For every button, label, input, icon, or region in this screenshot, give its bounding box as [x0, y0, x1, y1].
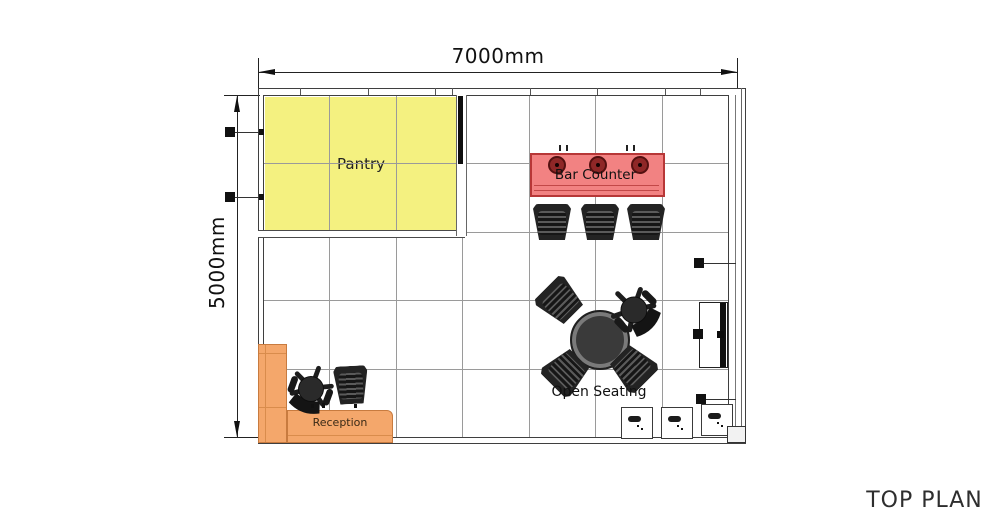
- wall-marker-icon: [696, 394, 706, 404]
- dimension-line-left: [237, 95, 238, 437]
- drawing-title: TOP PLAN: [852, 488, 997, 513]
- wall-joint-tick: [700, 88, 701, 95]
- counter-edge-line: [534, 190, 659, 191]
- extension-line-top: [224, 95, 260, 96]
- wall-top-inner: [263, 95, 728, 96]
- wall-joint-tick: [300, 88, 301, 95]
- wall-right-cavity: [735, 95, 736, 437]
- bar-stool: [627, 204, 665, 240]
- wall-joint-tick: [530, 88, 531, 95]
- extension-line-right: [737, 58, 738, 88]
- pendant-mark-icon: [559, 145, 561, 151]
- wall-marker-icon: [225, 127, 235, 137]
- dimension-label-height: 5000mm: [205, 219, 229, 309]
- wall-top-outer: [258, 88, 745, 89]
- counter-edge-line: [534, 185, 659, 186]
- visitor-chair: [333, 365, 369, 405]
- marker-connector: [703, 263, 736, 264]
- arrow-down-icon: [234, 421, 240, 437]
- wall-joint-tick: [368, 88, 369, 95]
- desk-panel-line: [259, 353, 286, 354]
- dimension-label-width: 7000mm: [440, 44, 556, 68]
- door-hinge-icon: [693, 329, 703, 339]
- grid-line: [662, 95, 663, 437]
- pantry-bottom-wall: [258, 230, 465, 238]
- wall-right-outer1: [741, 88, 742, 443]
- door-handle-icon: [717, 331, 724, 338]
- desk-grommet: [311, 404, 314, 408]
- floor-box-icon: [621, 407, 653, 439]
- wall-socket-tick: [259, 129, 264, 135]
- bar-stool: [533, 204, 571, 240]
- wall-bottom-outer: [258, 443, 745, 444]
- dimension-line-top: [258, 72, 738, 73]
- desk-panel-line: [265, 345, 266, 442]
- wall-end-detail: [727, 426, 746, 443]
- grid-line: [529, 95, 530, 437]
- floor-plan-canvas: 7000mm 5000mm Pantry: [0, 0, 1000, 527]
- reception-desk-side: [258, 344, 287, 443]
- wall-marker-icon: [694, 258, 704, 268]
- bar-counter-label: Bar Counter: [532, 167, 659, 183]
- wall-right-outer2: [745, 88, 746, 444]
- grid-line: [396, 95, 397, 437]
- extension-line-bottom: [224, 437, 260, 438]
- desk-grommet: [354, 404, 357, 408]
- wall-joint-tick: [435, 88, 436, 95]
- pendant-mark-icon: [626, 145, 628, 151]
- desk-grommet: [322, 403, 325, 408]
- arrow-up-icon: [234, 96, 240, 112]
- pantry-door-leaf: [458, 96, 463, 164]
- marker-connector: [705, 399, 736, 400]
- reception-label: Reception: [287, 416, 393, 429]
- wall-right-inner: [728, 95, 729, 437]
- bar-stool: [581, 204, 619, 240]
- floor-box-icon: [661, 407, 693, 439]
- wall-joint-tick: [665, 88, 666, 95]
- wall-marker-icon: [225, 192, 235, 202]
- open-seating-label: Open Seating: [540, 384, 658, 400]
- pendant-mark-icon: [566, 145, 568, 151]
- pendant-mark-icon: [633, 145, 635, 151]
- wall-joint-tick: [452, 88, 453, 95]
- arrow-left-icon: [259, 69, 275, 75]
- desk-panel-line: [288, 435, 392, 436]
- arrow-right-icon: [721, 69, 737, 75]
- wall-joint-tick: [597, 88, 598, 95]
- desk-panel-line: [259, 407, 286, 408]
- wall-socket-tick: [259, 194, 264, 200]
